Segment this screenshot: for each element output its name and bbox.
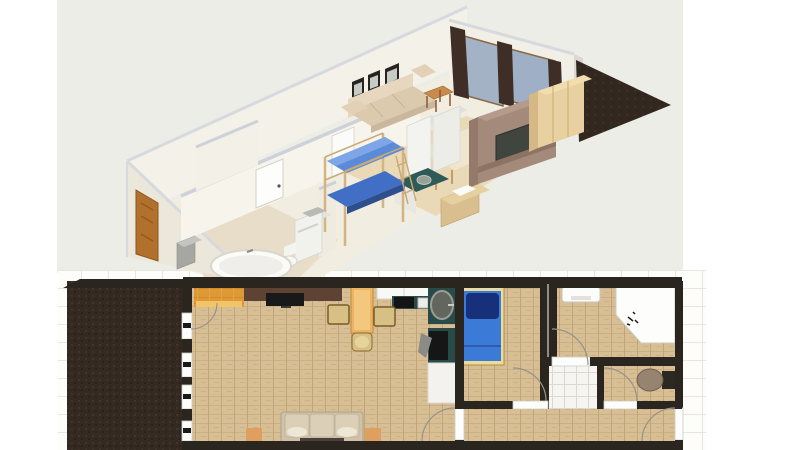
- bedroom-door-gap: [513, 401, 548, 409]
- bed-pillow-2d: [466, 293, 499, 319]
- floor-plan-2d: [63, 277, 683, 450]
- wall-window-seg-2: [182, 339, 192, 353]
- wall-window-seg-3: [182, 377, 192, 385]
- rug-left-2d: [246, 428, 262, 442]
- bath-door-gap: [552, 357, 590, 366]
- sofa-pillow-left-2d: [287, 427, 307, 437]
- dining-table-inner-2d: [354, 290, 370, 330]
- pot-2d: [418, 298, 428, 308]
- wall-right-seg-2: [675, 440, 683, 446]
- sofa-cushion-mid-2d: [310, 414, 334, 437]
- floorplan-canvas: [0, 0, 800, 450]
- kitchen-wood-counter-glow: [196, 301, 242, 307]
- wall-living-bedroom-seg-2: [455, 440, 464, 446]
- entry-door-3d: [136, 190, 158, 261]
- tv-unit-3d-side: [469, 117, 478, 189]
- corridor-floor: [456, 404, 677, 443]
- tv-stand-2d: [281, 306, 291, 308]
- wall-corridor-top-seg-1: [455, 401, 513, 409]
- window-tick-4: [183, 428, 191, 433]
- bathtub-3d-inner: [219, 255, 283, 277]
- wall-right-seg-1: [675, 281, 683, 408]
- counter-white-2d: [428, 363, 457, 403]
- toilet-bowl-2d: [637, 369, 663, 391]
- coffee-machine-2d: [394, 297, 414, 308]
- wall-top: [183, 277, 682, 288]
- tv-2d: [266, 293, 304, 306]
- window-tick-2: [183, 362, 191, 367]
- window-tick-3: [183, 394, 191, 399]
- hall-door-knob-3d: [277, 184, 280, 187]
- cabinet-3d: [433, 106, 460, 172]
- wall-bottom: [182, 441, 683, 450]
- wardrobe-3d-side: [529, 91, 538, 152]
- wall-bath-bottom-seg-2: [590, 357, 682, 366]
- stool-seat-2d: [355, 336, 369, 348]
- wc-door-gap: [604, 401, 637, 409]
- living-door-gap: [455, 408, 464, 440]
- wall-window-seg-4: [182, 409, 192, 421]
- wall-bath-bottom-seg-1: [540, 357, 552, 366]
- wall-corridor-top-seg-2: [637, 401, 682, 409]
- entrance-door-gap: [675, 408, 683, 440]
- wall-living-bedroom-seg-1: [455, 281, 464, 408]
- stove-2d: [429, 331, 448, 360]
- kitchen-sink-3d: [417, 176, 431, 185]
- chair-left-2d: [328, 305, 349, 324]
- window-tick-1: [183, 323, 191, 328]
- terrace-floor: [67, 281, 190, 450]
- wall-window-seg-1: [182, 281, 192, 313]
- bathroom-vanity-detail-2d: [571, 296, 591, 300]
- wall-wc-left: [597, 365, 604, 409]
- toilet-tank-2d: [662, 371, 675, 389]
- entry-tile-floor: [549, 366, 597, 409]
- rug-right-2d: [365, 428, 381, 442]
- scene-svg: [0, 0, 800, 450]
- curtain-2: [497, 41, 514, 107]
- chair-right-2d: [374, 307, 395, 326]
- wall-terrace-top: [63, 279, 190, 288]
- sofa-pillow-right-2d: [337, 427, 357, 437]
